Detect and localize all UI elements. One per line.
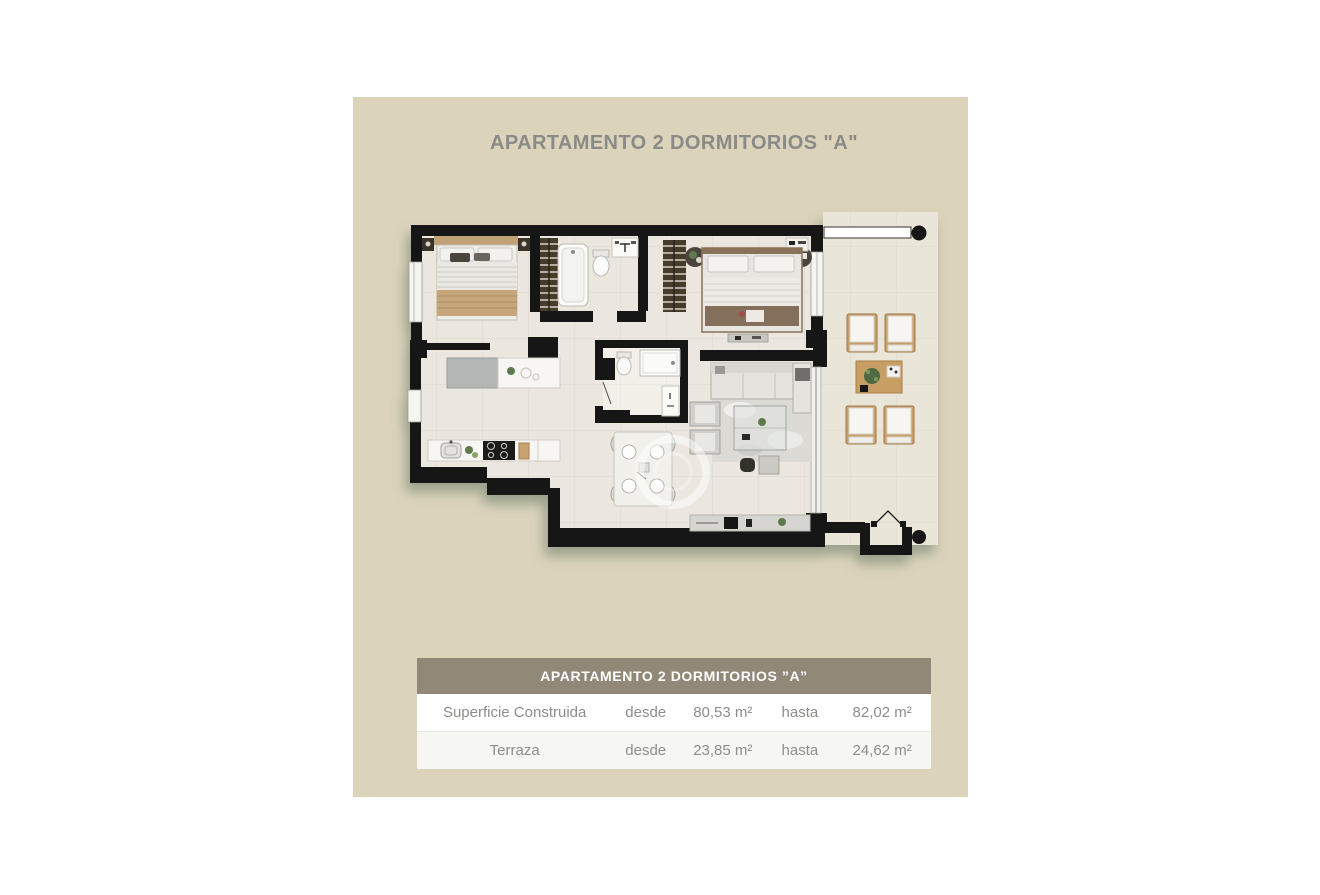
lounge-chair (847, 314, 877, 352)
floor-plan-drawing (390, 200, 950, 580)
from-label: desde (612, 704, 679, 721)
floor-plan (390, 200, 950, 580)
to-label: hasta (767, 704, 834, 721)
entrance-column (912, 530, 926, 544)
to-value: 24,62 m² (833, 742, 931, 759)
cooktop (483, 441, 515, 460)
toilet-2 (617, 352, 631, 375)
terrace-table (856, 361, 902, 393)
kitchen-peninsula (447, 358, 498, 388)
row-label: Terraza (417, 742, 612, 759)
sink-vanity (612, 238, 638, 257)
terrace-column (912, 226, 927, 241)
spec-table: APARTAMENTO 2 DORMITORIOS ”A” Superficie… (417, 658, 931, 769)
spec-table-header: APARTAMENTO 2 DORMITORIOS ”A” (417, 658, 931, 694)
to-value: 82,02 m² (833, 704, 931, 721)
coffee-table (734, 406, 786, 450)
bed-2 (702, 248, 802, 332)
terrace-railing (824, 227, 911, 238)
toilet (593, 250, 609, 276)
bedroom-2-bench (728, 334, 768, 342)
kitchen-sink (441, 440, 461, 458)
flyer-page: APARTAMENTO 2 DORMITORIOS "A" (0, 0, 1320, 895)
page-title: APARTAMENTO 2 DORMITORIOS "A" (417, 132, 931, 155)
table-row: Superficie Construida desde 80,53 m² has… (417, 694, 931, 731)
side-cube (759, 456, 779, 474)
bed-1 (434, 236, 518, 320)
from-value: 80,53 m² (679, 704, 766, 721)
from-value: 23,85 m² (679, 742, 766, 759)
bedroom-2-furniture (685, 238, 812, 342)
lounge-chair (884, 406, 914, 444)
wardrobe-1 (540, 238, 558, 311)
table-row: Terraza desde 23,85 m² hasta 24,62 m² (417, 731, 931, 769)
tv-console (690, 515, 810, 531)
sink-vanity-2 (662, 386, 679, 416)
row-label: Superficie Construida (417, 704, 612, 721)
wardrobe-2 (663, 240, 686, 312)
bedroom-1-furniture (422, 236, 530, 320)
lounge-chair (846, 406, 876, 444)
to-label: hasta (767, 742, 834, 759)
lounge-chair (885, 314, 915, 352)
pouf (740, 458, 755, 472)
flyer-panel: APARTAMENTO 2 DORMITORIOS "A" (353, 97, 968, 797)
from-label: desde (612, 742, 679, 759)
